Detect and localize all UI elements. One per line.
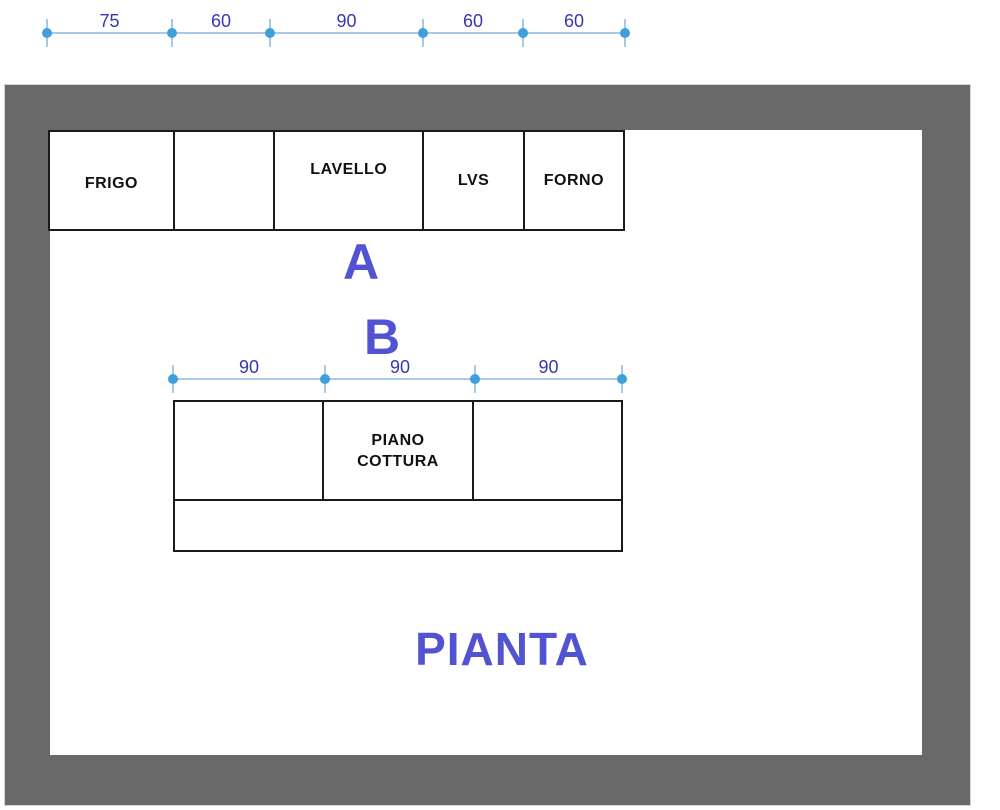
cabinet-frigo: FRIGO xyxy=(50,132,175,229)
dimension-value: 60 xyxy=(523,11,625,31)
dimension-value: 60 xyxy=(172,11,270,31)
dimension-value: 90 xyxy=(475,357,622,377)
section-label-b: B xyxy=(350,310,414,364)
island-cell-empty-right xyxy=(474,402,621,499)
dimension-value: 75 xyxy=(47,11,172,31)
cabinet-forno: FORNO xyxy=(525,132,623,229)
dimension-line xyxy=(47,32,625,34)
cabinet-label: PIANO COTTURA xyxy=(339,430,457,472)
page-title: PIANTA xyxy=(390,622,614,676)
island-cell-empty-left xyxy=(175,402,324,499)
cabinet-label: LAVELLO xyxy=(310,161,387,179)
section-label-a: A xyxy=(329,235,393,289)
cabinet-lavello: LAVELLO xyxy=(275,132,424,229)
cabinet-label: FRIGO xyxy=(85,175,138,193)
dimension-value: 90 xyxy=(270,11,423,31)
dimension-value: 90 xyxy=(325,357,475,377)
cabinet-label: LVS xyxy=(458,172,489,190)
dimension-value: 90 xyxy=(173,357,325,377)
island-cabinet-run: PIANO COTTURA xyxy=(173,400,623,501)
island-cell-piano-cottura: PIANO COTTURA xyxy=(324,402,473,499)
cabinet-empty xyxy=(175,132,275,229)
dimension-line xyxy=(173,378,622,380)
island-counter-empty xyxy=(175,501,621,550)
cabinet-lvs: LVS xyxy=(424,132,524,229)
floor-plan-canvas: 75 60 90 60 60 FRIGO LAVELLO LVS FORNO A… xyxy=(0,0,1000,810)
dimension-value: 60 xyxy=(423,11,523,31)
island-counter-strip xyxy=(173,499,623,552)
cabinet-label: FORNO xyxy=(544,172,604,190)
wall-cabinet-run: FRIGO LAVELLO LVS FORNO xyxy=(48,130,625,231)
